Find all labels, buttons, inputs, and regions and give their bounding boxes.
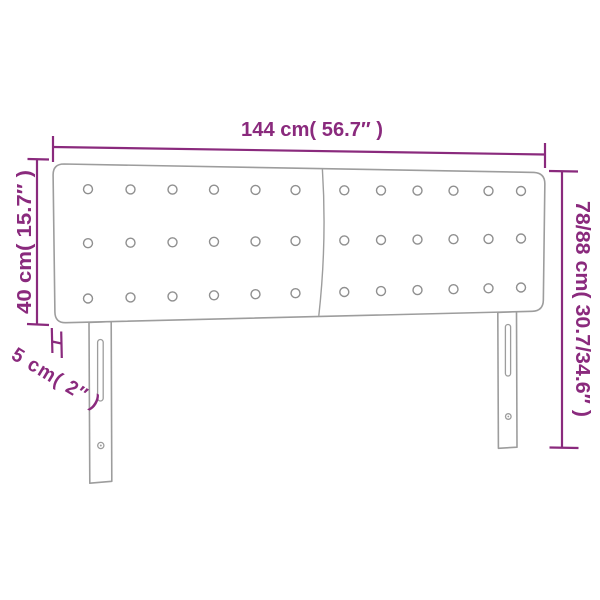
tufting-button <box>340 186 349 195</box>
tufting-button <box>340 288 349 297</box>
tufting-button <box>517 234 526 243</box>
headboard-height-cap-top <box>28 159 50 160</box>
tufting-button <box>449 235 458 244</box>
headboard-diagram-svg: 144 cm( 56.7″ ) 40 cm( 15.7″ ) 78/88 cm(… <box>0 0 600 600</box>
depth-crossbar <box>52 342 62 344</box>
tufting-button <box>126 238 135 247</box>
headboard-height-cap-bottom <box>27 324 49 325</box>
tufting-button <box>377 186 386 195</box>
tufting-button <box>291 236 300 245</box>
width-dimension-label: 144 cm( 56.7″ ) <box>241 119 383 141</box>
left-leg-screw-dot <box>100 445 102 447</box>
total-height-label: 78/88 cm( 30.7/34.6″ ) <box>571 201 593 417</box>
tufting-button <box>484 284 493 293</box>
tufting-button <box>210 291 219 300</box>
width-dimension: 144 cm( 56.7″ ) <box>53 119 545 168</box>
tufting-button <box>413 186 422 195</box>
total-height-cap-bottom <box>550 448 579 449</box>
tufting-button <box>484 234 493 243</box>
tufting-button <box>168 292 177 301</box>
dimension-diagram: 144 cm( 56.7″ ) 40 cm( 15.7″ ) 78/88 cm(… <box>0 0 600 600</box>
width-dimension-line <box>53 147 545 155</box>
tufting-button <box>84 239 93 248</box>
tufting-button <box>413 286 422 295</box>
tufting-button <box>517 283 526 292</box>
right-leg <box>498 312 517 449</box>
tufting-button <box>377 236 386 245</box>
headboard-height-label: 40 cm( 15.7″ ) <box>14 170 36 314</box>
tufting-button <box>126 185 135 194</box>
tufting-button <box>340 236 349 245</box>
tufting-button <box>377 287 386 296</box>
total-height-cap-top <box>549 171 578 172</box>
tufting-button <box>168 185 177 194</box>
tufting-button <box>251 185 260 194</box>
tufting-button <box>126 293 135 302</box>
tufting-button <box>168 238 177 247</box>
tufting-button <box>251 290 260 299</box>
tufting-button <box>413 235 422 244</box>
right-leg-screw-dot <box>507 416 509 418</box>
tufting-button <box>84 294 93 303</box>
tufting-button <box>251 237 260 246</box>
tufting-button <box>517 187 526 196</box>
tufting-button <box>449 186 458 195</box>
tufting-button <box>484 186 493 195</box>
tufting-button <box>449 285 458 294</box>
headboard-body <box>53 164 545 323</box>
headboard-height-dimension: 40 cm( 15.7″ ) <box>14 159 49 325</box>
tufting-button <box>210 237 219 246</box>
total-height-dimension: 78/88 cm( 30.7/34.6″ ) <box>549 171 593 448</box>
tufting-button <box>291 289 300 298</box>
tufting-button <box>210 185 219 194</box>
tufting-button <box>291 186 300 195</box>
tufting-button <box>84 185 93 194</box>
depth-tick-right <box>61 332 62 359</box>
right-leg-slot <box>505 325 510 377</box>
